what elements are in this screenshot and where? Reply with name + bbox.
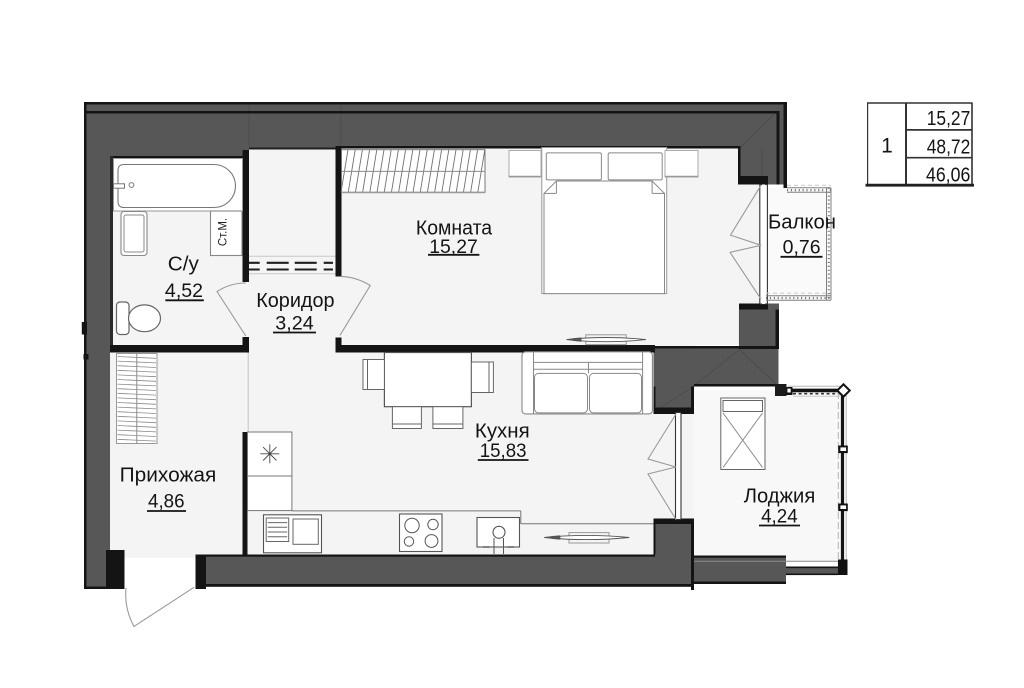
svg-text:4,52: 4,52 bbox=[165, 281, 203, 302]
svg-text:46,06: 46,06 bbox=[926, 163, 970, 186]
svg-text:15,83: 15,83 bbox=[480, 441, 527, 462]
svg-text:15,27: 15,27 bbox=[927, 107, 971, 130]
svg-text:Балкон: Балкон bbox=[768, 212, 836, 234]
svg-text:Кухня: Кухня bbox=[475, 421, 530, 443]
svg-text:3,24: 3,24 bbox=[275, 314, 314, 335]
svg-text:1: 1 bbox=[881, 135, 893, 158]
svg-text:Ст.М.: Ст.М. bbox=[218, 218, 230, 246]
svg-text:4,86: 4,86 bbox=[148, 492, 185, 513]
svg-text:С/у: С/у bbox=[168, 254, 199, 276]
svg-text:4,24: 4,24 bbox=[761, 507, 798, 528]
svg-text:Лоджия: Лоджия bbox=[744, 486, 816, 508]
svg-text:0,76: 0,76 bbox=[783, 238, 821, 259]
svg-text:Прихожая: Прихожая bbox=[120, 465, 217, 487]
svg-text:Коридор: Коридор bbox=[256, 290, 334, 312]
svg-text:48,72: 48,72 bbox=[927, 136, 971, 159]
